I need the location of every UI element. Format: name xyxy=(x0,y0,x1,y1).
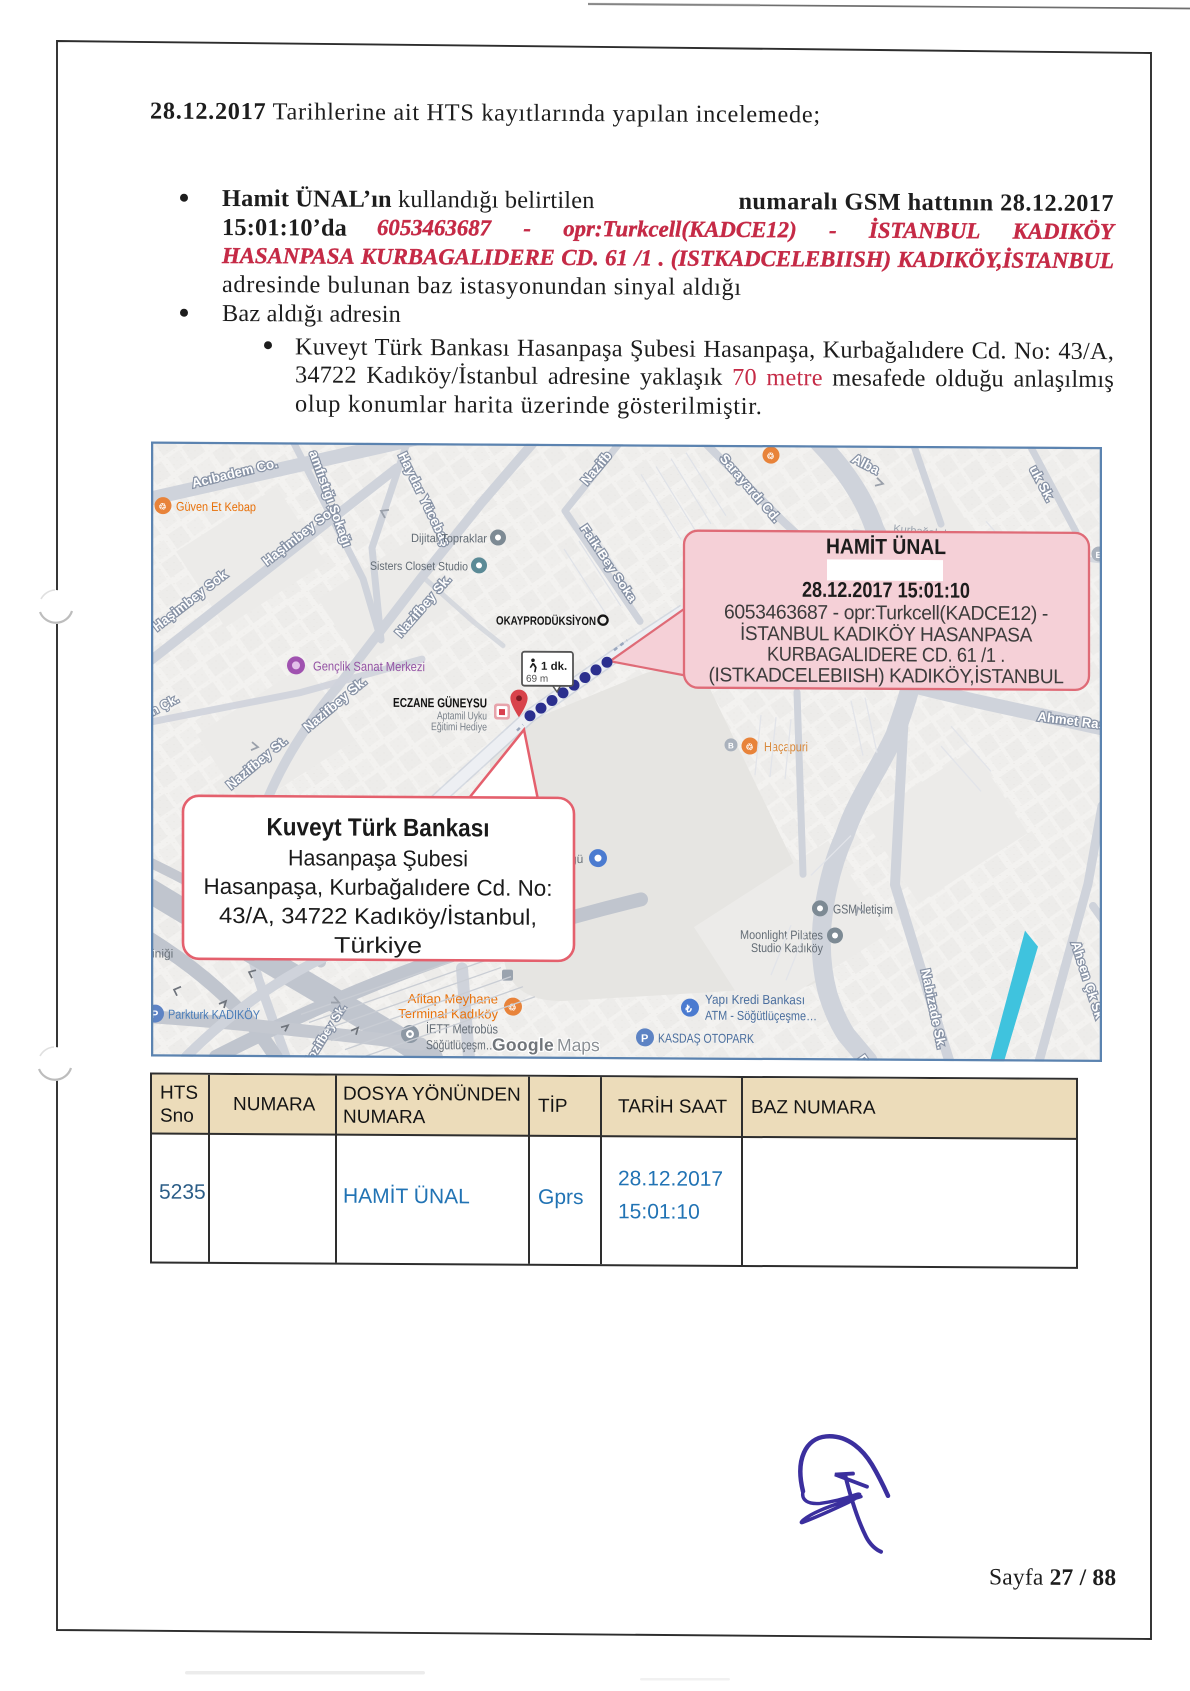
svg-text:Kuveyt Türk Bankası: Kuveyt Türk Bankası xyxy=(267,813,490,842)
svg-text:Hasanpaşa Şubesi: Hasanpaşa Şubesi xyxy=(288,845,468,871)
svg-text:Hasanpaşa, Kurbağalıdere Cd. N: Hasanpaşa, Kurbağalıdere Cd. No: xyxy=(204,874,553,901)
svg-text:Haçapuri: Haçapuri xyxy=(764,739,808,754)
svg-text:P: P xyxy=(641,1033,648,1045)
svg-text:₺: ₺ xyxy=(685,1004,693,1015)
svg-text:Parkturk KADIKÖY: Parkturk KADIKÖY xyxy=(168,1007,260,1023)
svg-text:Dijital Topraklar: Dijital Topraklar xyxy=(411,531,487,545)
svg-text:ATM - Söğütlüçeşme…: ATM - Söğütlüçeşme… xyxy=(705,1008,817,1024)
svg-text:HAMİT ÜNAL: HAMİT ÜNAL xyxy=(826,533,946,559)
svg-text:1 dk.: 1 dk. xyxy=(541,661,567,673)
svg-text:♲: ♲ xyxy=(767,451,775,461)
svg-text:43/A, 34722 Kadıköy/İstanbul,: 43/A, 34722 Kadıköy/İstanbul, xyxy=(219,903,537,930)
svg-text:GSM İletişim: GSM İletişim xyxy=(833,901,893,916)
svg-text:Google: Google xyxy=(492,1035,554,1055)
svg-text:♲: ♲ xyxy=(746,742,754,752)
svg-text:6053463687 - opr:Turkcell(KADC: 6053463687 - opr:Turkcell(KADCE12) - xyxy=(724,601,1048,625)
svg-text:B: B xyxy=(728,741,734,750)
svg-text:(ISTKADCELEBIISH) KADIKÖY,İSTA: (ISTKADCELEBIISH) KADIKÖY,İSTANBUL xyxy=(709,663,1064,688)
svg-text:♲: ♲ xyxy=(159,502,167,512)
svg-text:Güven Et Kebap: Güven Et Kebap xyxy=(176,500,256,514)
svg-text:Studio Kadıköy: Studio Kadıköy xyxy=(751,941,824,955)
svg-text:OKAYPRODÜKSİYON: OKAYPRODÜKSİYON xyxy=(496,613,596,629)
svg-text:Afitap Meyhane: Afitap Meyhane xyxy=(408,991,498,1007)
svg-text:Söğütlüçeşm…: Söğütlüçeşm… xyxy=(426,1037,496,1052)
svg-text:KURBAGALIDERE CD. 61 /1 .: KURBAGALIDERE CD. 61 /1 . xyxy=(767,644,1005,667)
svg-text:Yapı Kredi Bankası: Yapı Kredi Bankası xyxy=(705,992,805,1008)
svg-text:Türkiye: Türkiye xyxy=(334,933,422,959)
svg-text:ECZANE GÜNEYSU: ECZANE GÜNEYSU xyxy=(393,695,487,711)
svg-text:28.12.2017 15:01:10: 28.12.2017 15:01:10 xyxy=(802,578,970,603)
svg-text:KASDAŞ OTOPARK: KASDAŞ OTOPARK xyxy=(658,1030,754,1046)
svg-text:Gençlik Sanat Merkezi: Gençlik Sanat Merkezi xyxy=(313,658,425,674)
svg-text:Eğitimi Hediye: Eğitimi Hediye xyxy=(431,721,487,733)
svg-text:Maps: Maps xyxy=(557,1035,600,1055)
svg-text:Sisters Closet Studio: Sisters Closet Studio xyxy=(370,559,468,574)
svg-text:iniği: iniği xyxy=(152,947,173,961)
svg-text:İETT Metrobüs: İETT Metrobüs xyxy=(426,1021,498,1036)
svg-text:69 m: 69 m xyxy=(526,674,548,685)
